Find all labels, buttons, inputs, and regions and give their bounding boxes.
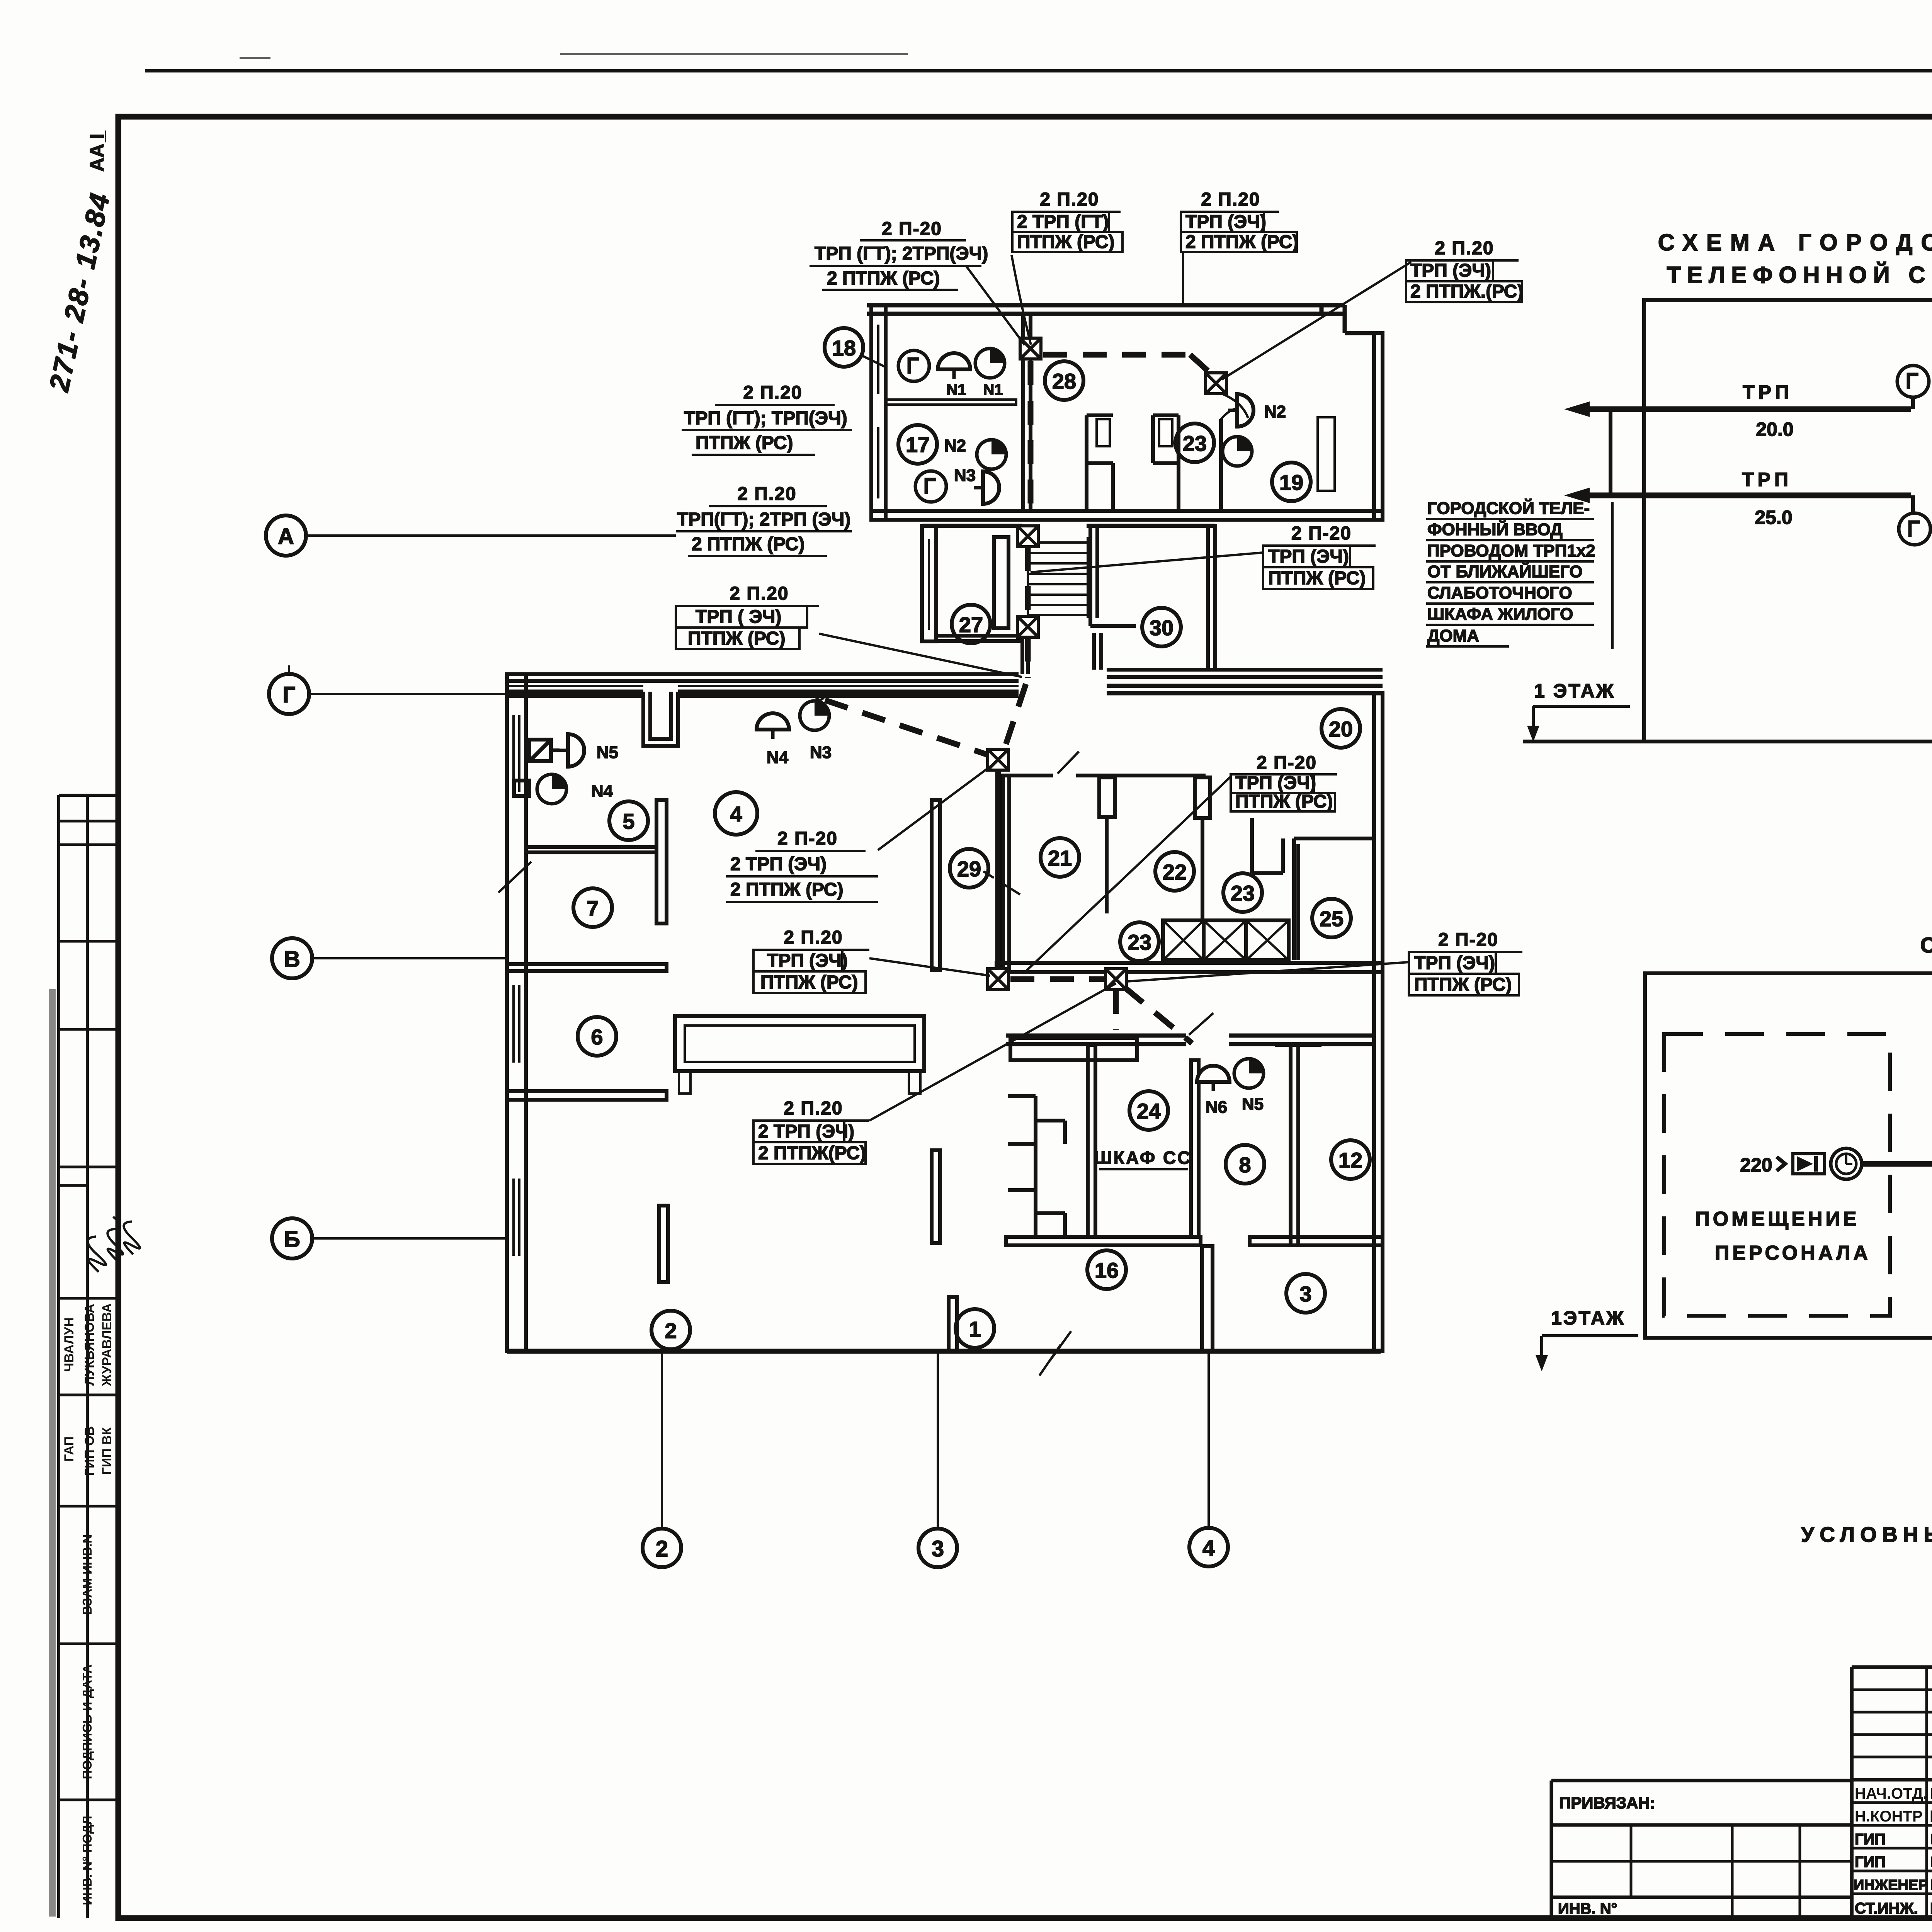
svg-text:СХЕМА ГОРОДСКОЙ: СХЕМА ГОРОДСКОЙ xyxy=(1658,230,1932,255)
svg-text:ГИП: ГИП xyxy=(1855,1854,1886,1871)
svg-text:2 ПТПЖ (РС): 2 ПТПЖ (РС) xyxy=(827,268,940,289)
svg-text:20: 20 xyxy=(1329,717,1353,741)
svg-text:ПТПЖ (РС): ПТПЖ (РС) xyxy=(1235,791,1333,812)
svg-text:1 ЭТАЖ: 1 ЭТАЖ xyxy=(1534,680,1615,702)
svg-text:2 ПТПЖ(РС): 2 ПТПЖ(РС) xyxy=(758,1143,866,1163)
svg-text:Н.КОНТР: Н.КОНТР xyxy=(1855,1808,1923,1825)
svg-text:25.0: 25.0 xyxy=(1755,507,1792,528)
svg-text:ТРП (ГТ); 2ТРП(ЭЧ): ТРП (ГТ); 2ТРП(ЭЧ) xyxy=(815,243,988,264)
svg-text:23: 23 xyxy=(1231,881,1255,905)
svg-text:ГАП: ГАП xyxy=(62,1436,77,1462)
svg-text:29: 29 xyxy=(957,857,981,881)
svg-text:28: 28 xyxy=(1052,369,1076,393)
svg-text:2: 2 xyxy=(665,1318,677,1343)
svg-text:2 П.20: 2 П.20 xyxy=(730,583,789,604)
svg-text:2 П-20: 2 П-20 xyxy=(882,219,942,239)
svg-text:Б: Б xyxy=(284,1227,300,1252)
svg-text:23: 23 xyxy=(1183,431,1207,456)
svg-text:УСЛОВНЫЕ ОБОЗНАЧЕНИЯ СМ. ЛИ: УСЛОВНЫЕ ОБОЗНАЧЕНИЯ СМ. ЛИСТ 1. xyxy=(1801,1522,1932,1546)
svg-text:2 ПТПЖ (РС): 2 ПТПЖ (РС) xyxy=(730,879,844,900)
svg-text:ПТПЖ (РС): ПТПЖ (РС) xyxy=(1268,568,1366,588)
svg-text:4: 4 xyxy=(730,802,742,826)
svg-text:ШИШОВА: ШИШОВА xyxy=(1930,1854,1932,1871)
svg-text:ТРП (ЭЧ): ТРП (ЭЧ) xyxy=(1185,212,1266,232)
svg-text:ТРП (ЭЧ): ТРП (ЭЧ) xyxy=(767,951,848,971)
svg-text:2: 2 xyxy=(656,1536,668,1561)
svg-text:4: 4 xyxy=(1202,1536,1215,1561)
svg-text:2 П-20: 2 П-20 xyxy=(1257,753,1317,773)
svg-text:НАЧ.ОТД.: НАЧ.ОТД. xyxy=(1855,1785,1927,1802)
svg-text:2 П-20: 2 П-20 xyxy=(1291,523,1352,544)
svg-text:ПОДПИСЬ И ДАТА: ПОДПИСЬ И ДАТА xyxy=(80,1664,94,1779)
svg-text:ГИП: ГИП xyxy=(1855,1831,1886,1848)
svg-text:23: 23 xyxy=(1128,930,1151,954)
svg-text:1ЭТАЖ: 1ЭТАЖ xyxy=(1551,1307,1625,1329)
svg-text:ДОМА: ДОМА xyxy=(1427,626,1479,645)
svg-text:27: 27 xyxy=(959,612,983,637)
svg-text:17: 17 xyxy=(906,432,930,457)
svg-text:ШЕИНА: ШЕИНА xyxy=(1930,1808,1932,1825)
svg-text:2 П.20: 2 П.20 xyxy=(1040,189,1099,210)
svg-text:N2: N2 xyxy=(1264,402,1286,421)
svg-text:2 ТРП (ЭЧ): 2 ТРП (ЭЧ) xyxy=(730,854,827,874)
svg-text:2 ПТПЖ (РС): 2 ПТПЖ (РС) xyxy=(1185,232,1299,252)
svg-text:6: 6 xyxy=(591,1025,603,1049)
svg-text:3: 3 xyxy=(932,1536,944,1561)
svg-text:2 ПТПЖ.(РС): 2 ПТПЖ.(РС) xyxy=(1410,281,1524,302)
svg-text:ТРП (ЭЧ): ТРП (ЭЧ) xyxy=(1235,773,1316,793)
svg-text:N3: N3 xyxy=(954,466,976,485)
svg-text:20.0: 20.0 xyxy=(1756,418,1793,440)
svg-text:Г: Г xyxy=(283,682,296,707)
svg-text:В: В xyxy=(284,947,300,972)
svg-text:ПРОНШТЕЙН: ПРОНШТЕЙН xyxy=(1930,1830,1932,1848)
svg-text:N5: N5 xyxy=(1242,1095,1264,1114)
svg-text:ПТПЖ (РС): ПТПЖ (РС) xyxy=(760,972,858,993)
svg-text:2 ПТПЖ (РС): 2 ПТПЖ (РС) xyxy=(692,534,805,554)
svg-text:N2: N2 xyxy=(944,436,966,455)
svg-text:2 П.20: 2 П.20 xyxy=(737,484,796,504)
svg-text:N4: N4 xyxy=(591,782,613,801)
svg-text:ПРОВОДОМ ТРП1х2: ПРОВОДОМ ТРП1х2 xyxy=(1427,541,1595,560)
svg-text:24: 24 xyxy=(1137,1099,1161,1123)
svg-text:16: 16 xyxy=(1095,1258,1119,1282)
svg-text:ТРП (ЭЧ): ТРП (ЭЧ) xyxy=(1414,953,1495,973)
svg-text:ЖУРАВЛЕВА: ЖУРАВЛЕВА xyxy=(100,1303,114,1387)
svg-text:ШЕИНА: ШЕИНА xyxy=(1930,1900,1932,1917)
svg-text:ПТПЖ (РС): ПТПЖ (РС) xyxy=(696,433,793,453)
svg-text:N1: N1 xyxy=(983,381,1003,398)
svg-text:7: 7 xyxy=(587,896,599,920)
svg-text:ВЗАМ ИНВ.N: ВЗАМ ИНВ.N xyxy=(80,1534,94,1615)
svg-text:ПОМЕЩЕНИЕ: ПОМЕЩЕНИЕ xyxy=(1695,1208,1859,1230)
svg-text:ТРП: ТРП xyxy=(1743,381,1793,403)
svg-text:2 П.20: 2 П.20 xyxy=(1201,189,1260,210)
svg-text:ФОННЫЙ ВВОД: ФОННЫЙ ВВОД xyxy=(1427,519,1563,539)
svg-text:ПТПЖ (РС): ПТПЖ (РС) xyxy=(1017,232,1115,252)
svg-text:2 ТРП (ГТ): 2 ТРП (ГТ) xyxy=(1017,212,1109,232)
svg-text:ТРП(ГТ); 2ТРП (ЭЧ): ТРП(ГТ); 2ТРП (ЭЧ) xyxy=(677,509,850,530)
svg-text:21: 21 xyxy=(1048,846,1072,870)
svg-text:2 П.20: 2 П.20 xyxy=(743,383,802,403)
svg-text:3: 3 xyxy=(1299,1282,1311,1306)
svg-text:ТРП: ТРП xyxy=(1742,469,1792,490)
svg-text:ПЕРСОНАЛА: ПЕРСОНАЛА xyxy=(1715,1242,1871,1264)
svg-text:2 П.20: 2 П.20 xyxy=(784,1098,843,1119)
svg-text:ГИП ВК: ГИП ВК xyxy=(100,1427,114,1475)
svg-text:ПТПЖ (РС): ПТПЖ (РС) xyxy=(688,628,786,649)
svg-text:ПТПЖ (РС): ПТПЖ (РС) xyxy=(1414,975,1512,995)
svg-text:ВЕПРИНСКИЙ: ВЕПРИНСКИЙ xyxy=(1930,1784,1932,1802)
svg-text:ЧВАЛУН: ЧВАЛУН xyxy=(62,1317,77,1372)
svg-text:ИНЖЕНЕР: ИНЖЕНЕР xyxy=(1854,1877,1928,1893)
svg-text:N1: N1 xyxy=(946,381,966,398)
svg-text:2 П-20: 2 П-20 xyxy=(777,828,838,849)
svg-text:ТРП ( ЭЧ): ТРП ( ЭЧ) xyxy=(696,607,781,627)
svg-text:ИНВ. N° ПОДЛ: ИНВ. N° ПОДЛ xyxy=(80,1816,94,1905)
svg-text:ТРП (ЭЧ): ТРП (ЭЧ) xyxy=(1410,260,1491,281)
svg-text:ТРП (ГТ); ТРП(ЭЧ): ТРП (ГТ); ТРП(ЭЧ) xyxy=(684,408,847,429)
svg-text:ТРП (ЭЧ): ТРП (ЭЧ) xyxy=(1268,546,1349,567)
svg-text:МАНУСОВА: МАНУСОВА xyxy=(1930,1876,1932,1893)
svg-text:5: 5 xyxy=(622,809,634,833)
svg-text:2 ТРП (ЭЧ): 2 ТРП (ЭЧ) xyxy=(758,1121,854,1142)
svg-text:12: 12 xyxy=(1338,1148,1362,1172)
svg-text:2 П-20: 2 П-20 xyxy=(1438,930,1498,950)
svg-text:ГОРОДСКОЙ ТЕЛЕ-: ГОРОДСКОЙ ТЕЛЕ- xyxy=(1427,498,1590,518)
svg-text:2 П.20: 2 П.20 xyxy=(1435,238,1494,259)
svg-text:А: А xyxy=(278,524,294,549)
svg-text:ТЕЛЕФОННОЙ СЕТИ: ТЕЛЕФОННОЙ СЕТИ xyxy=(1667,262,1932,288)
svg-text:AA I̲: AA I̲ xyxy=(86,131,108,172)
svg-text:ЛУКЬЯНОВА: ЛУКЬЯНОВА xyxy=(82,1304,97,1386)
svg-text:8: 8 xyxy=(1239,1153,1251,1177)
svg-text:СЛАБОТОЧНОГО: СЛАБОТОЧНОГО xyxy=(1427,583,1572,602)
svg-text:ОТ БЛИЖАЙШЕГО: ОТ БЛИЖАЙШЕГО xyxy=(1427,561,1583,581)
svg-text:N5: N5 xyxy=(597,743,618,762)
svg-text:2 П.20: 2 П.20 xyxy=(784,927,843,948)
svg-text:ПРИВЯЗАН:: ПРИВЯЗАН: xyxy=(1559,1794,1655,1812)
svg-text:N3: N3 xyxy=(810,743,832,762)
svg-text:СТ.ИНЖ.: СТ.ИНЖ. xyxy=(1855,1900,1918,1917)
svg-text:19: 19 xyxy=(1279,470,1303,495)
svg-text:30: 30 xyxy=(1150,616,1173,640)
svg-text:N4: N4 xyxy=(767,748,789,767)
svg-text:ШКАФ СС: ШКАФ СС xyxy=(1094,1148,1192,1168)
svg-text:N6: N6 xyxy=(1206,1098,1227,1117)
svg-text:22: 22 xyxy=(1163,860,1187,884)
svg-text:25: 25 xyxy=(1320,906,1344,931)
svg-text:ИНВ. N°: ИНВ. N° xyxy=(1558,1900,1617,1917)
svg-text:СХЕМА ЭЛЕКТРОЧАСОФИКАЦИИ: СХЕМА ЭЛЕКТРОЧАСОФИКАЦИИ xyxy=(1920,933,1932,957)
svg-text:ГИП ОВ: ГИП ОВ xyxy=(82,1426,97,1476)
svg-text:18: 18 xyxy=(832,336,856,360)
svg-text:ШКАФА ЖИЛОГО: ШКАФА ЖИЛОГО xyxy=(1427,605,1573,624)
svg-text:220: 220 xyxy=(1740,1154,1772,1176)
svg-text:1: 1 xyxy=(969,1317,981,1341)
